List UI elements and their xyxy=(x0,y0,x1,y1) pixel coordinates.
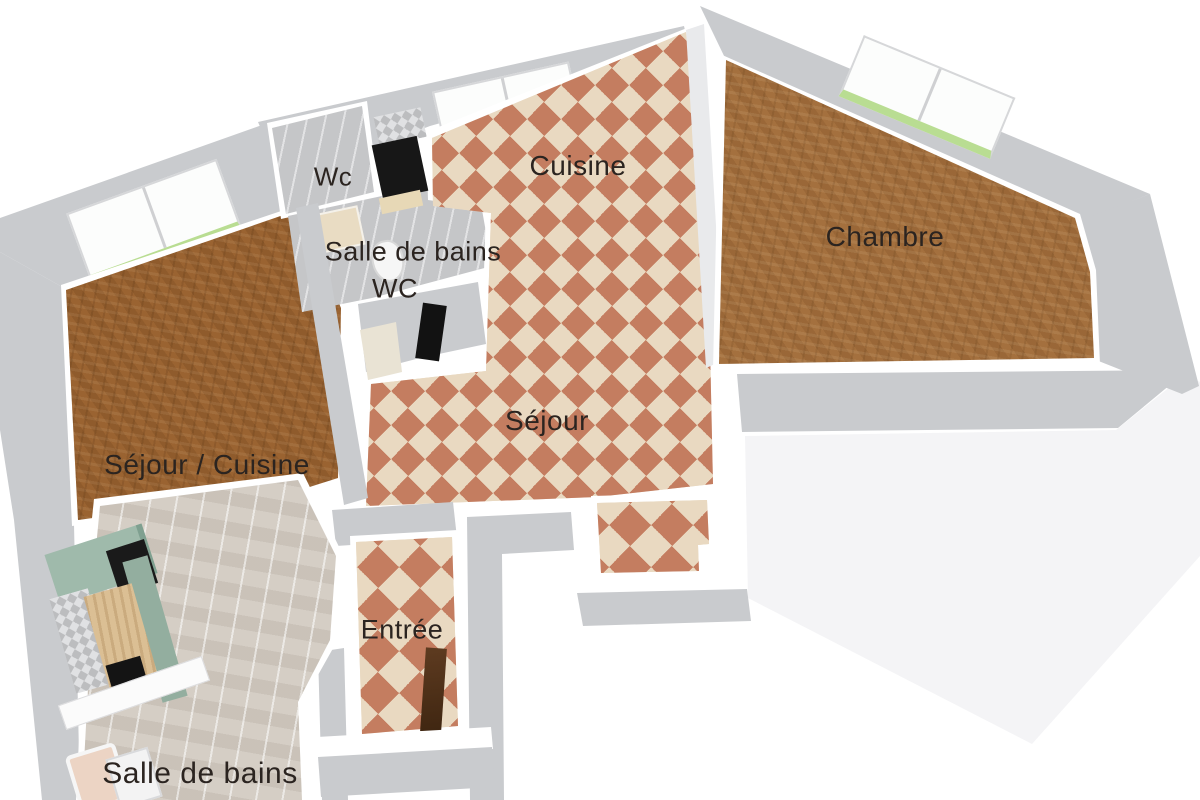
room-label-wc-top: Wc xyxy=(314,162,353,193)
floorplan-canvas: Wc Salle de bains WC Cuisine Chambre Séj… xyxy=(0,0,1200,800)
room-label-cuisine: Cuisine xyxy=(530,150,627,182)
window-divider xyxy=(917,68,941,121)
room-label-sejour: Séjour xyxy=(505,405,589,437)
room-label-entree: Entrée xyxy=(361,615,444,646)
room-label-salle-de-bains-upper: Salle de bains xyxy=(325,237,502,268)
room-label-wc-inner: WC xyxy=(372,274,418,305)
room-label-salle-de-bains-lower: Salle de bains xyxy=(102,757,297,791)
window-divider xyxy=(142,187,167,248)
room-label-sejour-cuisine: Séjour / Cuisine xyxy=(104,449,310,481)
room-label-chambre: Chambre xyxy=(826,221,945,253)
